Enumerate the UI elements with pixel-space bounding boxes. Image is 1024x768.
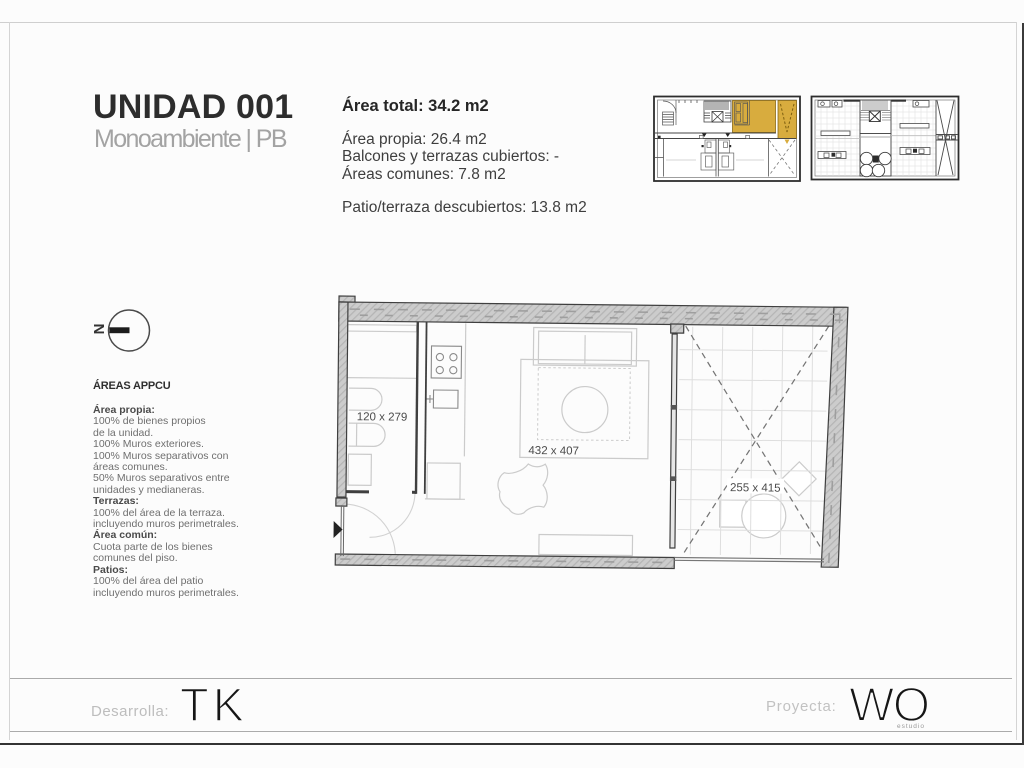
svg-text:432 x 407: 432 x 407: [528, 445, 579, 458]
svg-text:120 x 279: 120 x 279: [357, 411, 408, 424]
svg-text:255 x 415: 255 x 415: [730, 482, 781, 495]
svg-text:N: N: [91, 324, 108, 335]
